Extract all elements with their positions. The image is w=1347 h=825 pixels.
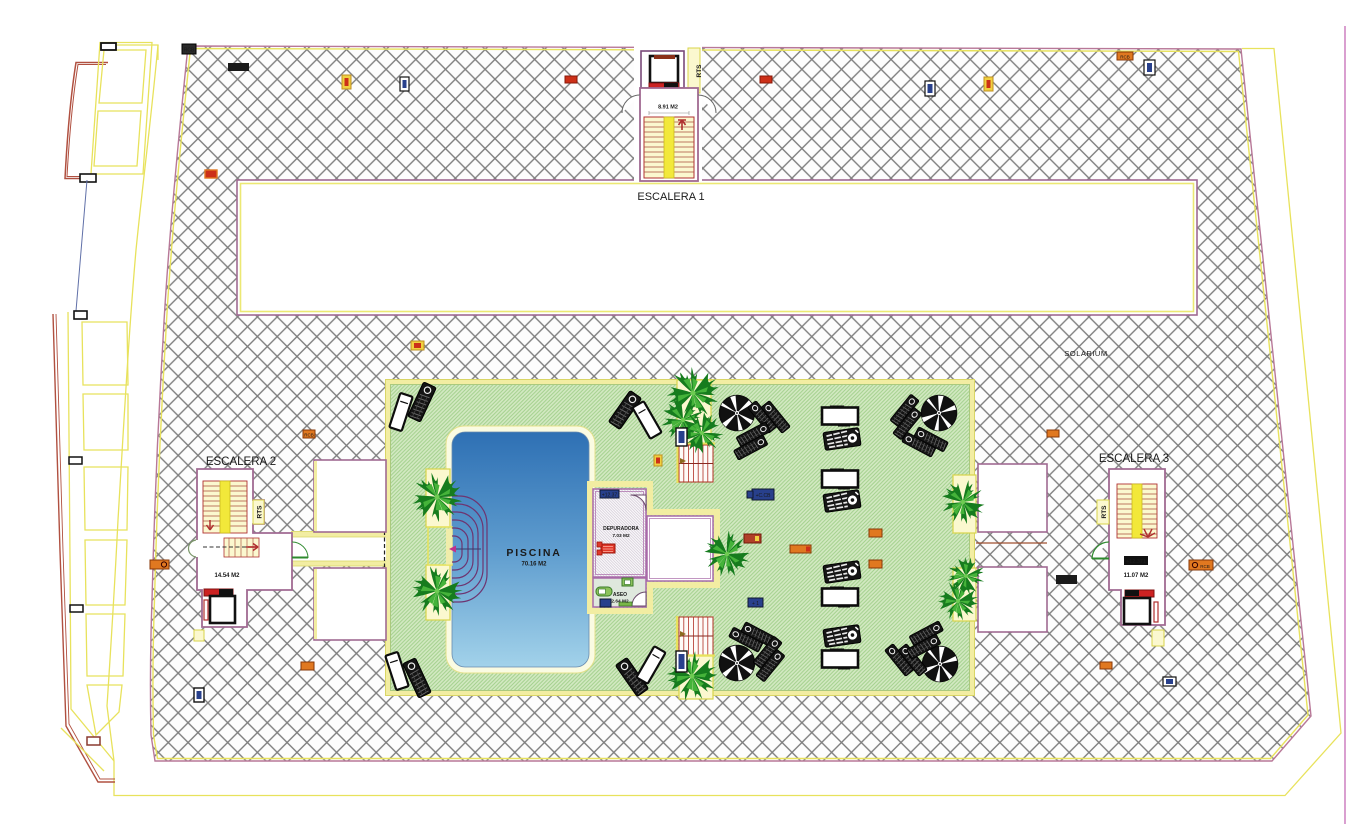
svg-text:8.91 M2: 8.91 M2	[658, 105, 678, 111]
svg-text:PISCINA: PISCINA	[506, 547, 561, 559]
svg-text:11.07 M2: 11.07 M2	[1124, 573, 1149, 579]
svg-text:RCB: RCB	[1200, 564, 1210, 569]
svg-text:SOLARIUM: SOLARIUM	[1064, 349, 1107, 358]
svg-text:+12.37: +12.37	[602, 493, 618, 499]
svg-text:ESCALERA 1: ESCALERA 1	[637, 191, 704, 203]
svg-text:RTS: RTS	[1101, 505, 1108, 519]
svg-text:7.03 M2: 7.03 M2	[612, 533, 630, 539]
svg-text:70.16 M2: 70.16 M2	[521, 562, 547, 568]
svg-text:14.54 M2: 14.54 M2	[214, 573, 240, 579]
svg-text:RTS: RTS	[257, 505, 264, 519]
svg-text:+C.CB: +C.CB	[756, 493, 772, 499]
svg-text:ASEO: ASEO	[613, 592, 627, 598]
svg-text:RCB: RCB	[304, 433, 314, 438]
svg-text:+12.371: +12.371	[1126, 559, 1146, 565]
svg-text:+12.371: +12.371	[228, 66, 248, 72]
svg-text:+ 1: + 1	[752, 601, 759, 607]
svg-text:RCB: RCB	[184, 48, 195, 54]
svg-text:DEPURADORA: DEPURADORA	[603, 526, 639, 532]
svg-text:RTS: RTS	[696, 64, 703, 78]
svg-text:ESCALERA 2: ESCALERA 2	[206, 456, 276, 468]
svg-text:2.64 M2: 2.64 M2	[611, 599, 629, 605]
svg-text:RCB: RCB	[1120, 55, 1130, 60]
svg-text:+12.371: +12.371	[1056, 578, 1076, 584]
svg-text:ESCALERA 3: ESCALERA 3	[1099, 453, 1169, 465]
